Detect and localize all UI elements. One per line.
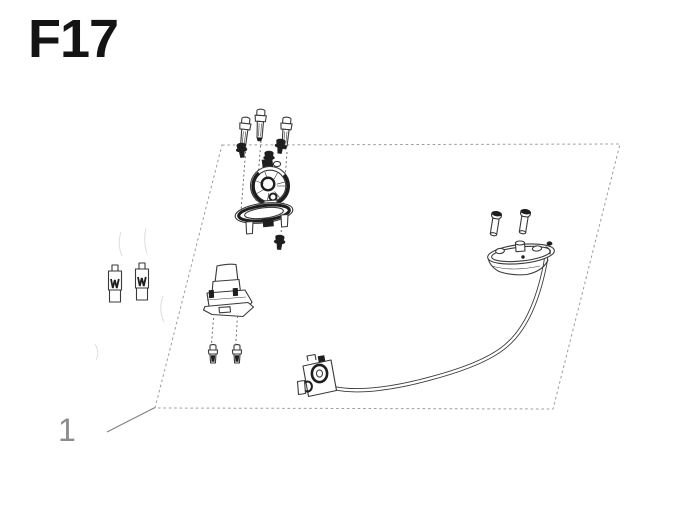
pump-mounting-flange bbox=[234, 200, 294, 234]
bracket-screw-2 bbox=[232, 345, 241, 363]
callout-leader-line bbox=[107, 408, 155, 433]
fuel-sender-unit bbox=[487, 209, 556, 275]
rubber-grommet-2 bbox=[136, 263, 149, 300]
bracket-screw-1 bbox=[208, 345, 217, 363]
mounting-bolt-2 bbox=[254, 109, 267, 141]
faint-sketch-marks bbox=[95, 228, 164, 360]
flange-screw-2 bbox=[274, 139, 286, 154]
rubber-grommet-1 bbox=[109, 265, 122, 302]
fuel-pump-assembly bbox=[234, 109, 294, 250]
sender-screw-2 bbox=[517, 209, 531, 235]
flange-screw-4 bbox=[274, 235, 286, 250]
diagram-canvas bbox=[0, 0, 700, 525]
sender-screw-1 bbox=[488, 211, 502, 237]
parts-diagram-page: F17 1 bbox=[0, 0, 700, 525]
ignition-lock-assembly bbox=[204, 264, 254, 363]
cable-connector bbox=[298, 355, 337, 397]
sender-cable bbox=[334, 247, 546, 390]
